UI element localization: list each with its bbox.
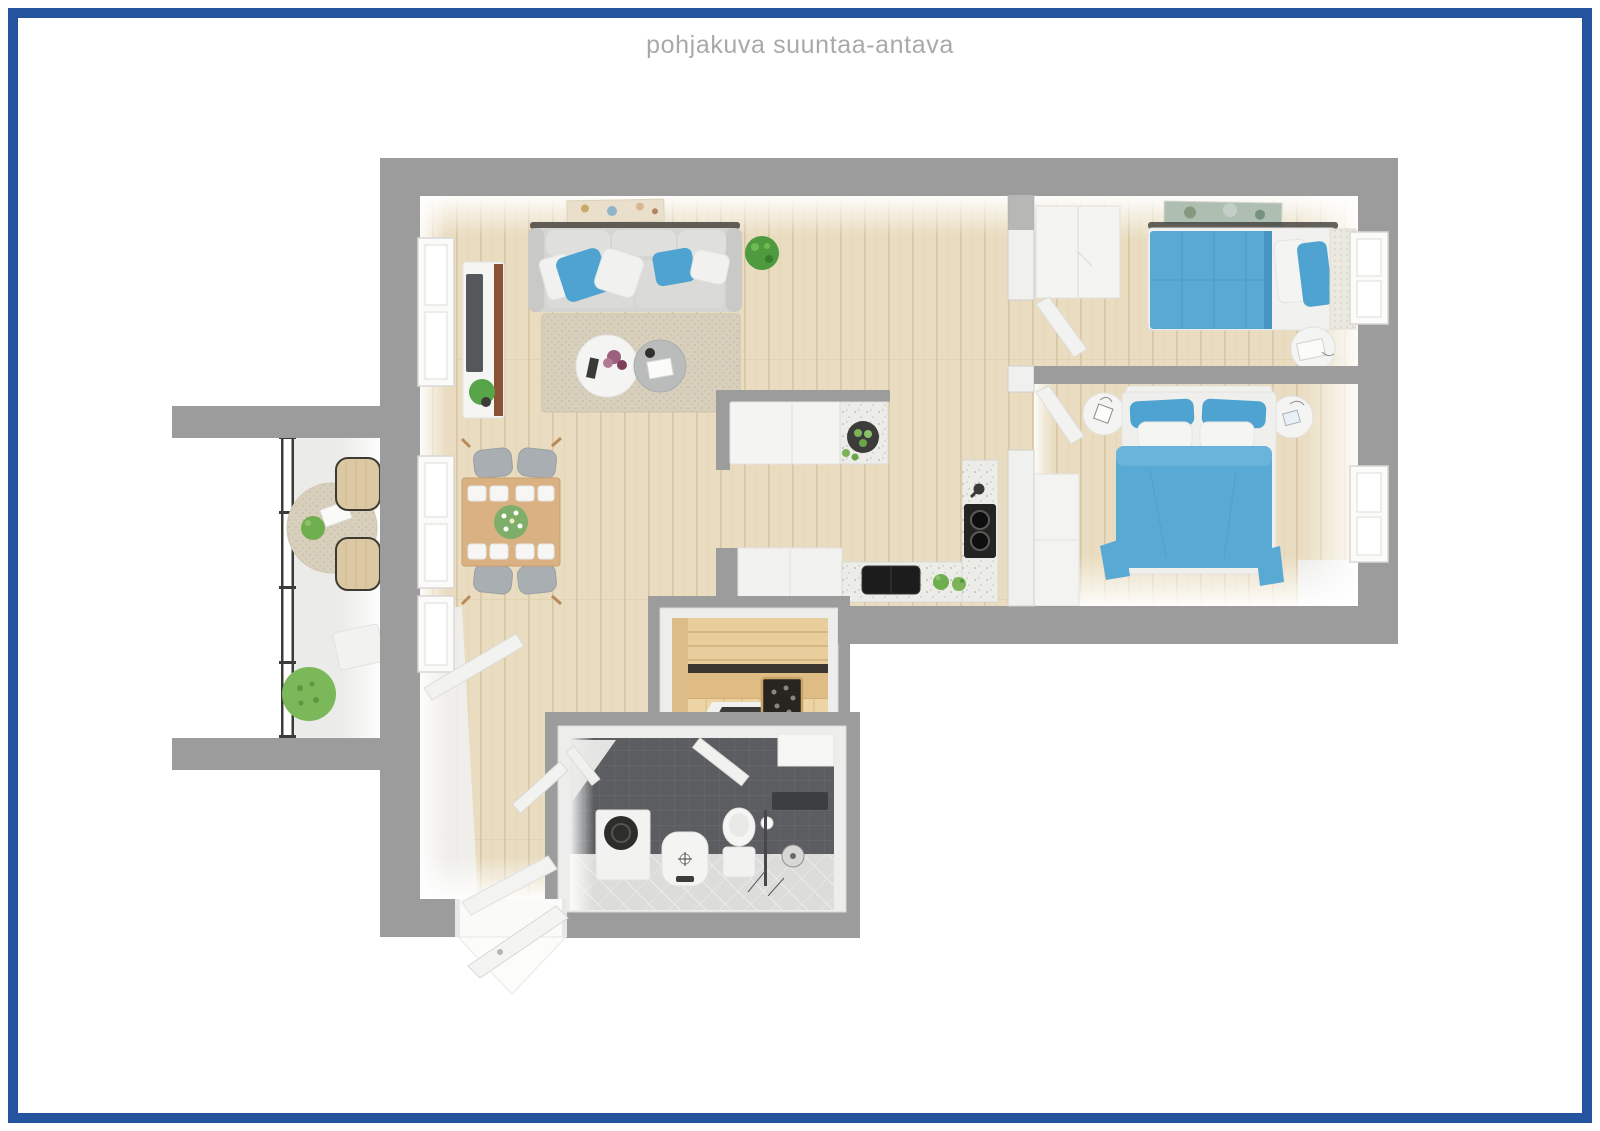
single-bed [1148, 222, 1356, 330]
nightstand-bedroom1 [1291, 327, 1335, 371]
wall-top [380, 158, 1398, 196]
duvet-foot-right [1256, 546, 1284, 586]
tv-stand [463, 262, 504, 418]
coffee-table [576, 335, 638, 397]
kitchen-sink [862, 566, 920, 594]
bathroom-sink [662, 832, 708, 886]
wall-bottom-right [838, 606, 1398, 644]
island-back-wall [716, 390, 890, 402]
hall-wall-cap [1008, 196, 1034, 230]
flower-centerpiece [494, 505, 528, 539]
wall-left [380, 158, 420, 937]
nightstand-right [1271, 396, 1313, 438]
nightstand-left [1083, 393, 1125, 435]
balcony-wall-bottom [172, 738, 380, 770]
dining-area [462, 438, 561, 604]
hall-wall-mid [1008, 366, 1034, 392]
window-bedroom-2 [1350, 466, 1388, 562]
duvet-fold [1116, 446, 1272, 466]
window-bedroom-1 [1350, 232, 1388, 324]
hall-wall-lower [1008, 450, 1034, 606]
wall-bottom-left [380, 899, 460, 937]
balcony-wall-top [172, 406, 380, 438]
tv-stand-wood-edge [494, 264, 503, 416]
wall-right [1358, 158, 1398, 644]
lounge-chair [336, 458, 380, 510]
island-side-wall [716, 390, 730, 470]
wall-between-bedrooms [1034, 366, 1360, 384]
door-jamb [455, 899, 460, 937]
sauna-bench-shadow [688, 664, 828, 673]
lounge-chair [336, 538, 380, 590]
cooktop [964, 504, 996, 558]
wall-art [567, 199, 664, 223]
plant-pot [481, 397, 491, 407]
balcony-door-frame [418, 596, 454, 672]
doorway-floor-1 [1008, 300, 1034, 366]
double-bed [1100, 386, 1284, 586]
duvet-edge [1264, 231, 1272, 329]
bathroom-shelf [778, 734, 834, 766]
window-dining [418, 456, 454, 588]
sauna-bench [688, 673, 828, 699]
balcony-rug-plant [301, 516, 325, 540]
balcony-plant-bush [282, 667, 336, 721]
doorway-floor-2 [1008, 392, 1034, 450]
door-handle [497, 949, 503, 955]
tv [466, 274, 483, 372]
wardrobe-bedroom1 [1036, 206, 1120, 298]
potted-plant [745, 236, 779, 270]
floor-plan [0, 0, 1600, 1131]
wardrobe-bedroom2 [1032, 474, 1079, 606]
window-living [418, 238, 454, 386]
side-table [634, 340, 686, 392]
washing-machine [596, 810, 650, 880]
plant-leaf [305, 520, 311, 526]
pillow-white [1138, 422, 1192, 449]
sauna-back-wall [672, 618, 828, 672]
page: pohjakuva suuntaa-antava [0, 0, 1600, 1131]
pillow-white [1200, 422, 1254, 449]
balcony [279, 436, 385, 738]
